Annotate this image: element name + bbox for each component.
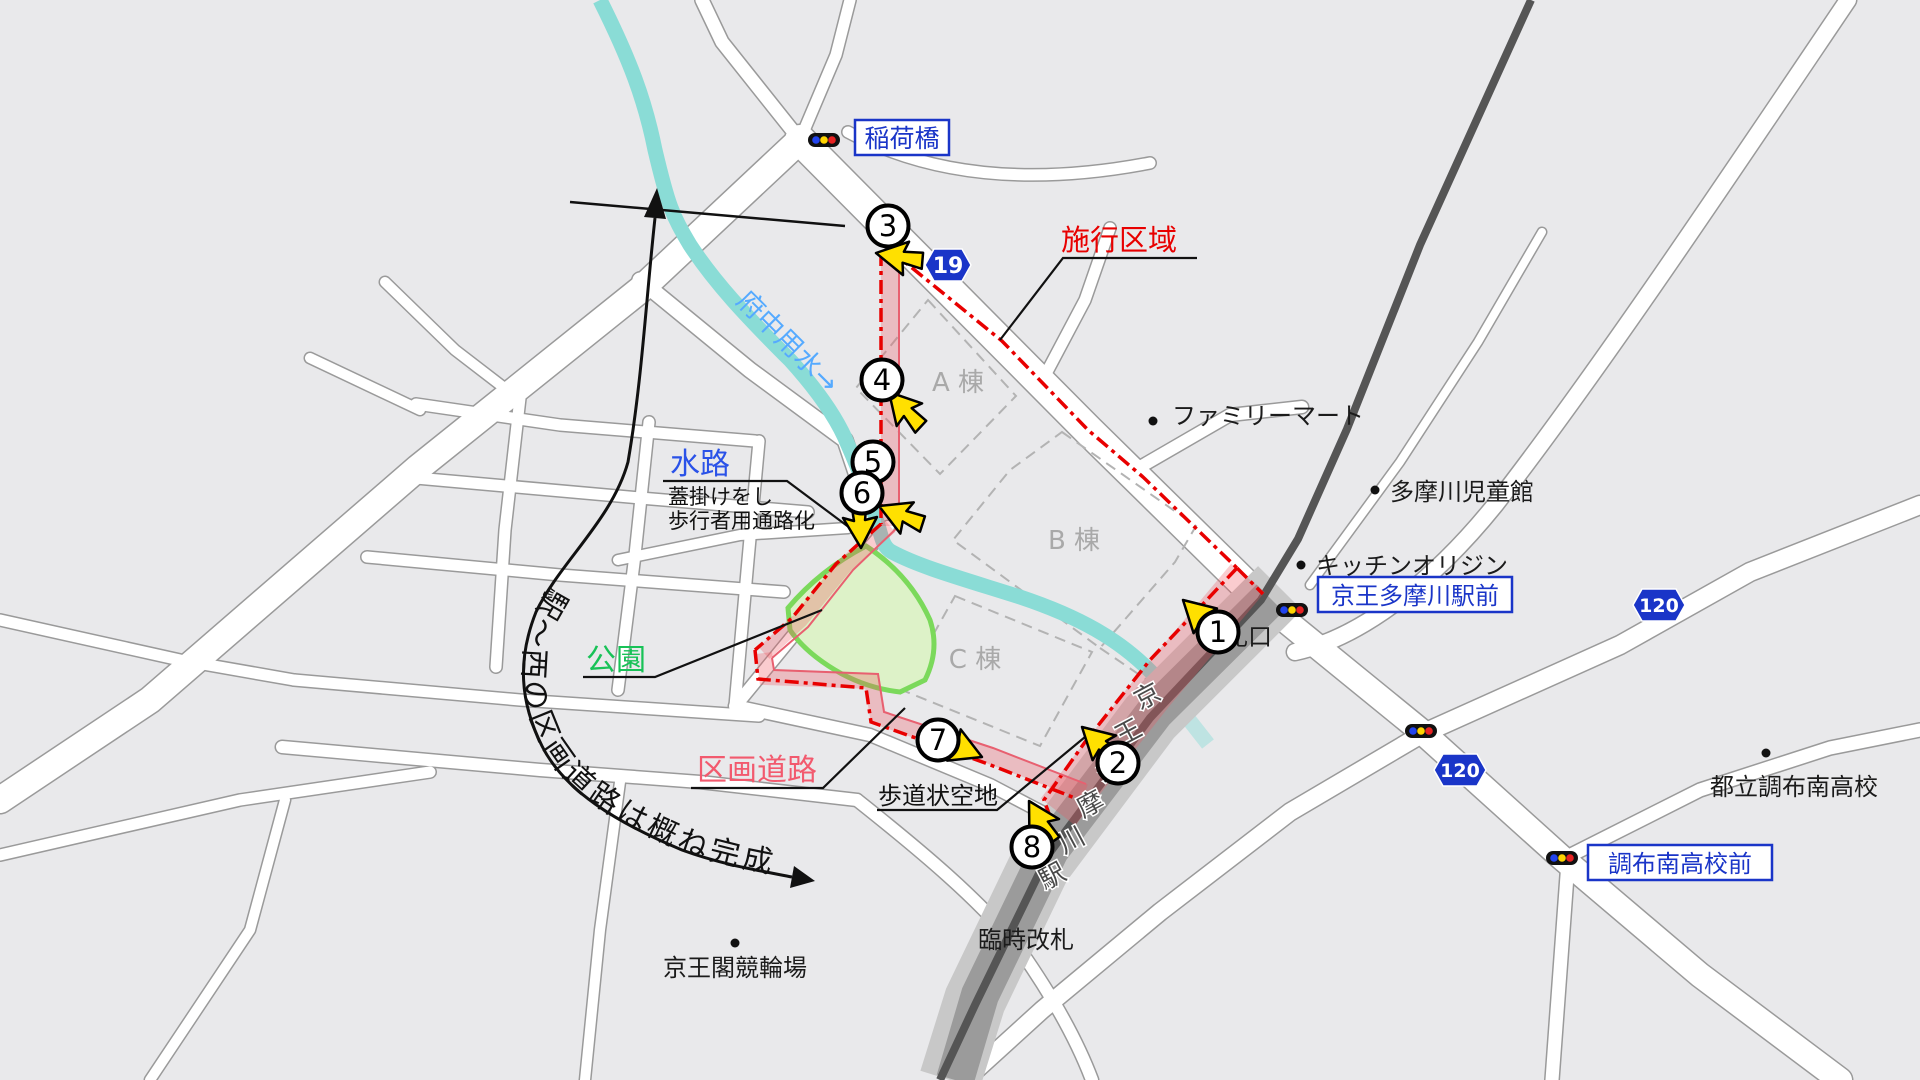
svg-text:3: 3	[879, 209, 897, 243]
district-road-label: 区画道路	[697, 753, 817, 788]
childrens-hall-label: 多摩川児童館	[1390, 478, 1534, 506]
waterway-label: 水路	[670, 447, 730, 482]
map-canvas: 駅～西の区画道路は概ね完成 施行区域 府中用水→ 水路 蓋掛けをし 歩行者用通路…	[0, 0, 1920, 1080]
route-120-badge-2: 120	[1633, 589, 1685, 621]
traffic-light-icon	[1405, 724, 1437, 738]
marker-6: 6	[842, 473, 883, 514]
svg-text:4: 4	[873, 363, 891, 397]
inari-bridge-label: 稲荷橋	[864, 124, 939, 153]
marker-8: 8	[1012, 827, 1053, 868]
high-school-dot	[1762, 749, 1771, 758]
waterway-note-1: 蓋掛けをし	[668, 485, 773, 509]
marker-4: 4	[862, 360, 903, 401]
traffic-light-icon	[1546, 851, 1578, 865]
inari-bridge-sign: 稲荷橋	[855, 120, 949, 155]
traffic-light-icon	[1276, 603, 1308, 617]
velodrome-label: 京王閣競輪場	[663, 954, 807, 982]
svg-text:120: 120	[1440, 760, 1480, 782]
svg-text:2: 2	[1109, 746, 1127, 780]
hs-front-sign: 調布南高校前	[1588, 845, 1772, 880]
building-b-label: B 棟	[1048, 526, 1100, 556]
childrens-hall-dot	[1371, 486, 1380, 495]
kitchen-origin-dot	[1297, 561, 1306, 570]
familymart-dot	[1149, 417, 1158, 426]
svg-text:19: 19	[933, 254, 964, 279]
marker-1: 1	[1198, 612, 1239, 653]
high-school-label: 都立調布南高校	[1710, 773, 1878, 801]
station-front-sign: 京王多摩川駅前	[1318, 577, 1512, 612]
route-19-badge: 19	[925, 249, 971, 281]
building-c-label: C 棟	[949, 645, 1001, 675]
velodrome-dot	[731, 939, 740, 948]
sidewalk-space-label: 歩道状空地	[878, 782, 998, 810]
station-front-label: 京王多摩川駅前	[1331, 582, 1499, 610]
marker-7: 7	[918, 720, 959, 761]
marker-3: 3	[868, 206, 909, 247]
hs-front-label: 調布南高校前	[1608, 850, 1752, 878]
svg-text:6: 6	[853, 476, 871, 510]
route-120-badge-1: 120	[1434, 754, 1486, 786]
svg-text:8: 8	[1023, 830, 1041, 864]
svg-text:1: 1	[1209, 615, 1227, 649]
waterway-note-2: 歩行者用通路化	[668, 509, 815, 533]
temporary-gate-label: 臨時改札	[978, 926, 1074, 954]
familymart-label: ファミリーマート	[1172, 402, 1364, 430]
svg-text:7: 7	[929, 723, 947, 757]
park-label: 公園	[586, 643, 646, 678]
marker-2: 2	[1098, 743, 1139, 784]
construction-area-label: 施行区域	[1061, 223, 1177, 257]
building-a-label: A 棟	[932, 368, 984, 398]
svg-text:120: 120	[1639, 595, 1679, 617]
traffic-light-icon	[808, 133, 840, 147]
